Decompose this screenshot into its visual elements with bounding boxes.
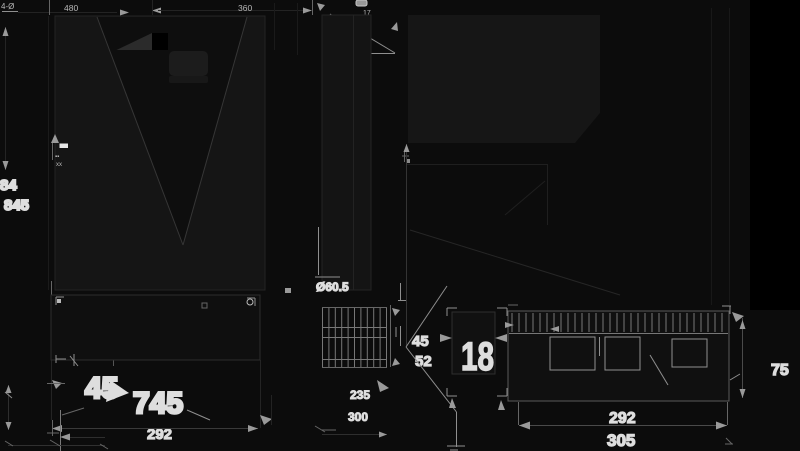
svg-text:300: 300 [348, 410, 368, 424]
svg-text:18: 18 [461, 335, 494, 379]
svg-text:845: 845 [4, 197, 29, 214]
svg-text:235: 235 [350, 388, 370, 402]
svg-text:45: 45 [412, 333, 429, 350]
svg-text:305: 305 [607, 431, 635, 450]
svg-text:745: 745 [133, 387, 183, 420]
svg-text:292: 292 [609, 410, 636, 427]
svg-text:Ø60.5: Ø60.5 [316, 280, 349, 294]
svg-text:4-Ø: 4-Ø [1, 2, 14, 11]
svg-text:84: 84 [0, 177, 17, 194]
svg-text:▪▪: ▪▪ [55, 154, 59, 160]
svg-text:360: 360 [238, 3, 252, 13]
svg-text:480: 480 [64, 3, 78, 13]
svg-text:75: 75 [771, 362, 789, 379]
svg-text:xx: xx [56, 162, 62, 168]
